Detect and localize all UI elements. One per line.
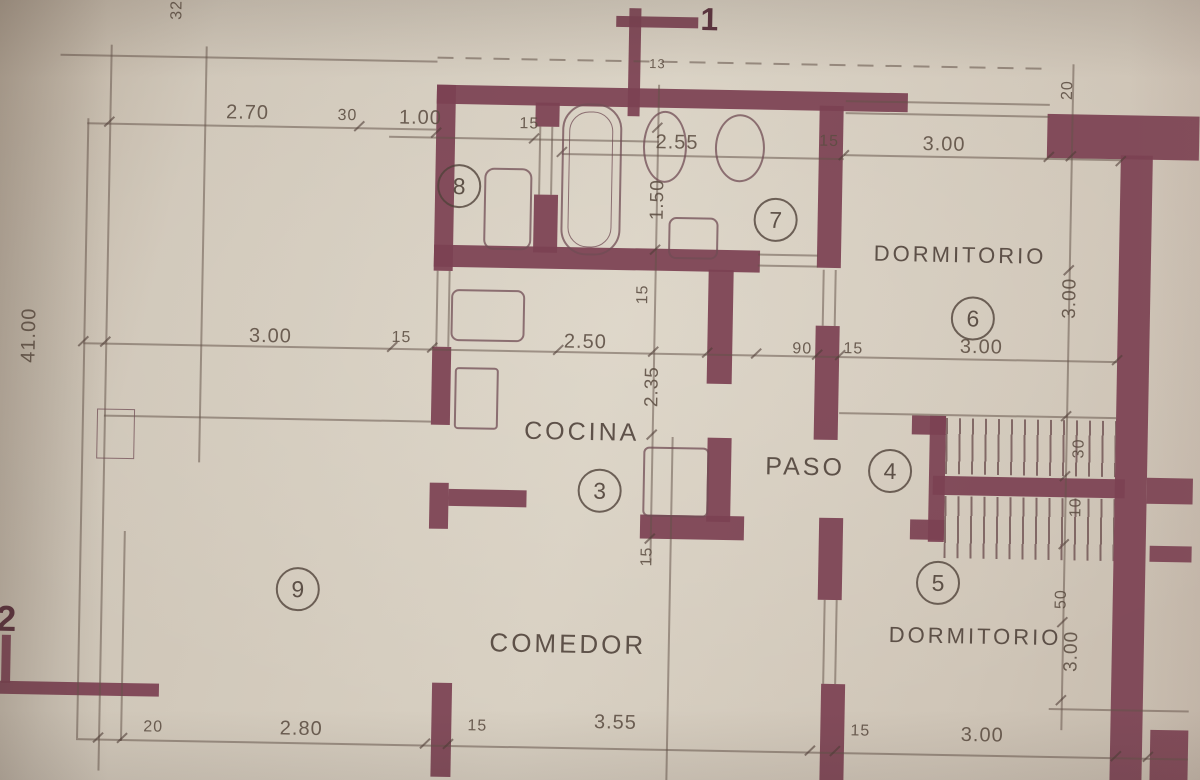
wall-cocina-L-horizontal [640,514,744,540]
window-left-line [435,271,438,347]
room-label-cocina: COCINA [524,417,640,448]
overhang-dashed-line [438,57,1047,70]
dim-15: 15 [634,284,652,304]
dim-30: 30 [337,107,357,125]
dim-90: 90 [792,340,812,358]
floor-plan-photo: DORMITORIO 6 DORMITORIO 5 COCINA 3 PASO … [0,0,1200,780]
dim-15: 15 [819,133,839,151]
room-number-4: 4 [868,449,913,494]
room-label-comedor: COMEDOR [489,627,646,661]
dim-4100: 41.00 [17,307,41,362]
wall-cocina-paso-upper [707,270,734,384]
section-marker-2-stub [1,635,11,683]
dim-100: 1.00 [399,106,442,130]
terrace-edge-line [104,415,431,423]
room-number-6: 6 [950,296,995,341]
dim-150: 1.50 [647,179,670,220]
dim-300: 3.00 [922,133,965,157]
dim-300: 3.00 [249,325,292,349]
dim-355: 3.55 [594,711,637,735]
door-bath7-line [758,265,818,268]
dim-235: 2.35 [641,366,664,407]
fixture-bathtub-inner [567,111,613,248]
dim-300: 3.00 [1060,631,1083,672]
dim-line-bottom [76,738,1188,760]
fixture-stove [642,446,709,517]
fixture-bidet [714,114,765,183]
wall-dorm6-left-lower [814,326,840,440]
dim-280: 2.80 [280,717,323,741]
grid-line-v2 [198,46,208,462]
wall-right-stub-small [1149,546,1191,563]
dim-line-left [76,118,89,738]
dim-15: 15 [638,547,656,567]
dim-15: 15 [467,717,487,735]
section-marker-1-cross [616,16,698,29]
dim-50: 50 [1053,589,1071,609]
room-label-dormitorio5: DORMITORIO [889,622,1062,651]
wall-right [1109,155,1153,780]
dim-10: 10 [1067,497,1085,517]
room-number-7: 7 [753,197,798,242]
fixture-sink [668,217,719,260]
door-bath8-line [550,127,553,195]
dim-300: 3.00 [961,724,1004,748]
door-bath8-line [538,127,541,195]
wall-cocina-L-vertical [706,438,732,522]
wall-dorm5-left-upper [818,518,843,600]
door-dorm5-line [834,600,838,684]
dim-20: 20 [1059,80,1077,100]
dim-20: 20 [143,718,163,736]
dim-255: 2.55 [655,131,698,155]
wall-right-stub-mid [1147,478,1193,505]
dim-250: 2.50 [564,331,607,355]
fixture-kitchen-counter [450,289,525,342]
fixture-kitchen-appliance [454,367,499,430]
dim-13: 13 [649,56,666,71]
room-label-dormitorio6: DORMITORIO [874,241,1047,270]
section-marker-1-label: 1 [700,1,718,38]
dim-270: 2.70 [226,101,269,125]
room-number-3: 3 [577,468,622,513]
door-dorm6-line [834,270,837,326]
wall-top-right-corner [1047,114,1200,161]
door-dorm6-line [822,270,825,326]
floor-plan: DORMITORIO 6 DORMITORIO 5 COCINA 3 PASO … [0,0,1200,780]
wall-stair-left-bottom [910,519,944,540]
room-label-paso: PASO [765,452,845,482]
wall-stair-landing [933,476,1125,499]
door-bath7-line [758,254,818,257]
boundary-line-top [61,54,438,63]
dim-300: 3.00 [960,336,1003,360]
wall-dorm5-left-stub [819,684,845,780]
dim-15: 15 [519,115,539,133]
room-number-8: 8 [437,164,482,209]
pillar-outline [96,408,135,459]
room-number-5: 5 [916,561,961,606]
wall-left-mid [431,347,451,425]
wall-entry-jamb-h [448,489,526,507]
dim-15: 15 [391,329,411,347]
dim-30: 30 [1070,438,1088,458]
wall-left-bottom-stub [430,683,452,777]
window-top-right-line [846,112,1050,118]
dim-32: 32 [168,0,186,20]
fixture-washbasin [483,168,532,251]
grid-line-v3 [120,531,126,741]
wall-entry-jamb-v [429,483,449,529]
room-number-9: 9 [275,567,320,612]
door-dorm5-line [822,600,826,684]
wall-dorm6-left-upper [817,106,844,268]
wall-bath-divider-bottom [533,194,558,252]
dim-300: 3.00 [1059,278,1082,319]
stair-treads-upper [945,418,1116,477]
stair-treads-lower [943,496,1114,561]
dim-15: 15 [850,722,870,740]
wall-right-stub-bottom [1149,730,1188,780]
dim-15: 15 [843,340,863,358]
section-marker-2-bar [0,681,159,697]
section-marker-2-label: 2 [0,598,17,640]
